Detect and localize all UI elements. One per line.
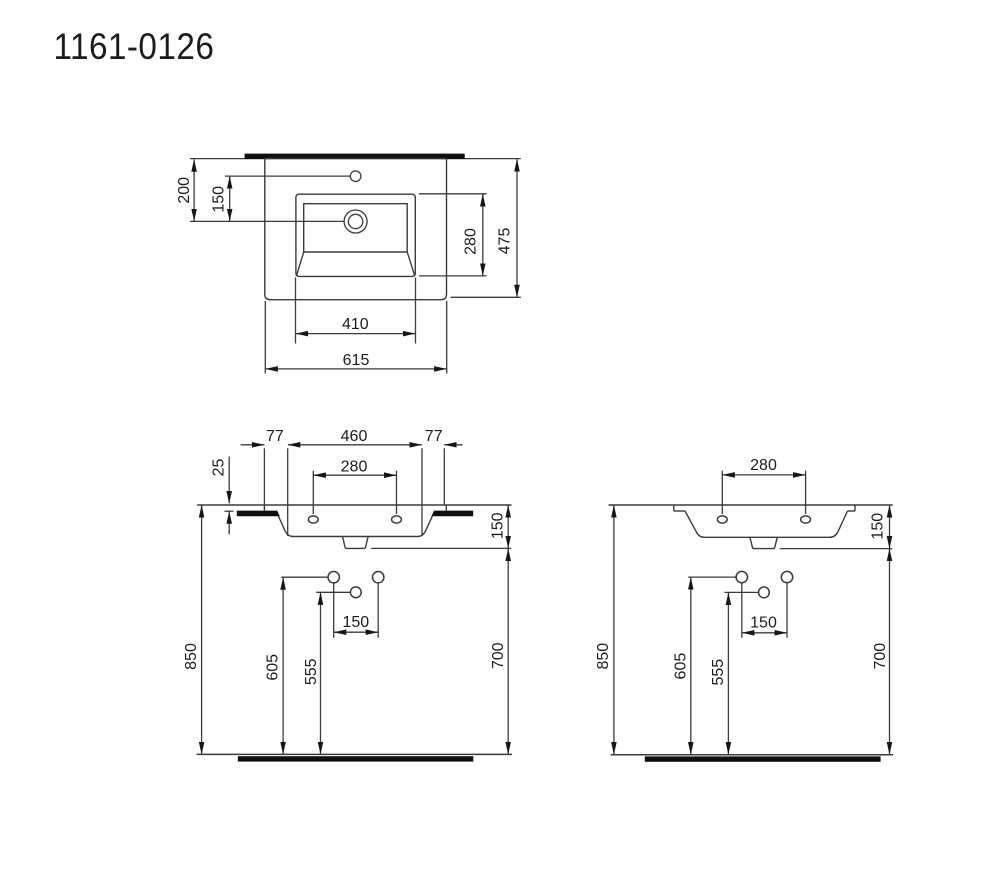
svg-text:460: 460 bbox=[341, 428, 368, 445]
svg-text:150: 150 bbox=[750, 615, 777, 632]
svg-text:150: 150 bbox=[489, 512, 506, 539]
svg-text:410: 410 bbox=[342, 316, 369, 333]
svg-text:150: 150 bbox=[869, 513, 886, 540]
svg-text:850: 850 bbox=[183, 643, 200, 670]
svg-text:25: 25 bbox=[211, 459, 228, 477]
svg-text:280: 280 bbox=[463, 228, 480, 255]
svg-text:605: 605 bbox=[672, 653, 689, 680]
svg-text:1161-0126: 1161-0126 bbox=[54, 26, 215, 67]
svg-text:850: 850 bbox=[595, 643, 612, 670]
svg-text:700: 700 bbox=[490, 642, 507, 669]
svg-text:77: 77 bbox=[425, 428, 443, 445]
svg-text:555: 555 bbox=[710, 659, 727, 686]
svg-text:200: 200 bbox=[176, 177, 193, 204]
svg-text:555: 555 bbox=[303, 658, 320, 685]
svg-text:150: 150 bbox=[342, 614, 369, 631]
svg-text:77: 77 bbox=[266, 428, 284, 445]
svg-text:605: 605 bbox=[264, 654, 281, 681]
svg-text:280: 280 bbox=[341, 459, 368, 476]
svg-text:475: 475 bbox=[497, 228, 514, 255]
svg-text:150: 150 bbox=[210, 186, 227, 213]
svg-text:280: 280 bbox=[750, 457, 777, 474]
svg-text:700: 700 bbox=[872, 643, 889, 670]
svg-text:615: 615 bbox=[343, 352, 370, 369]
